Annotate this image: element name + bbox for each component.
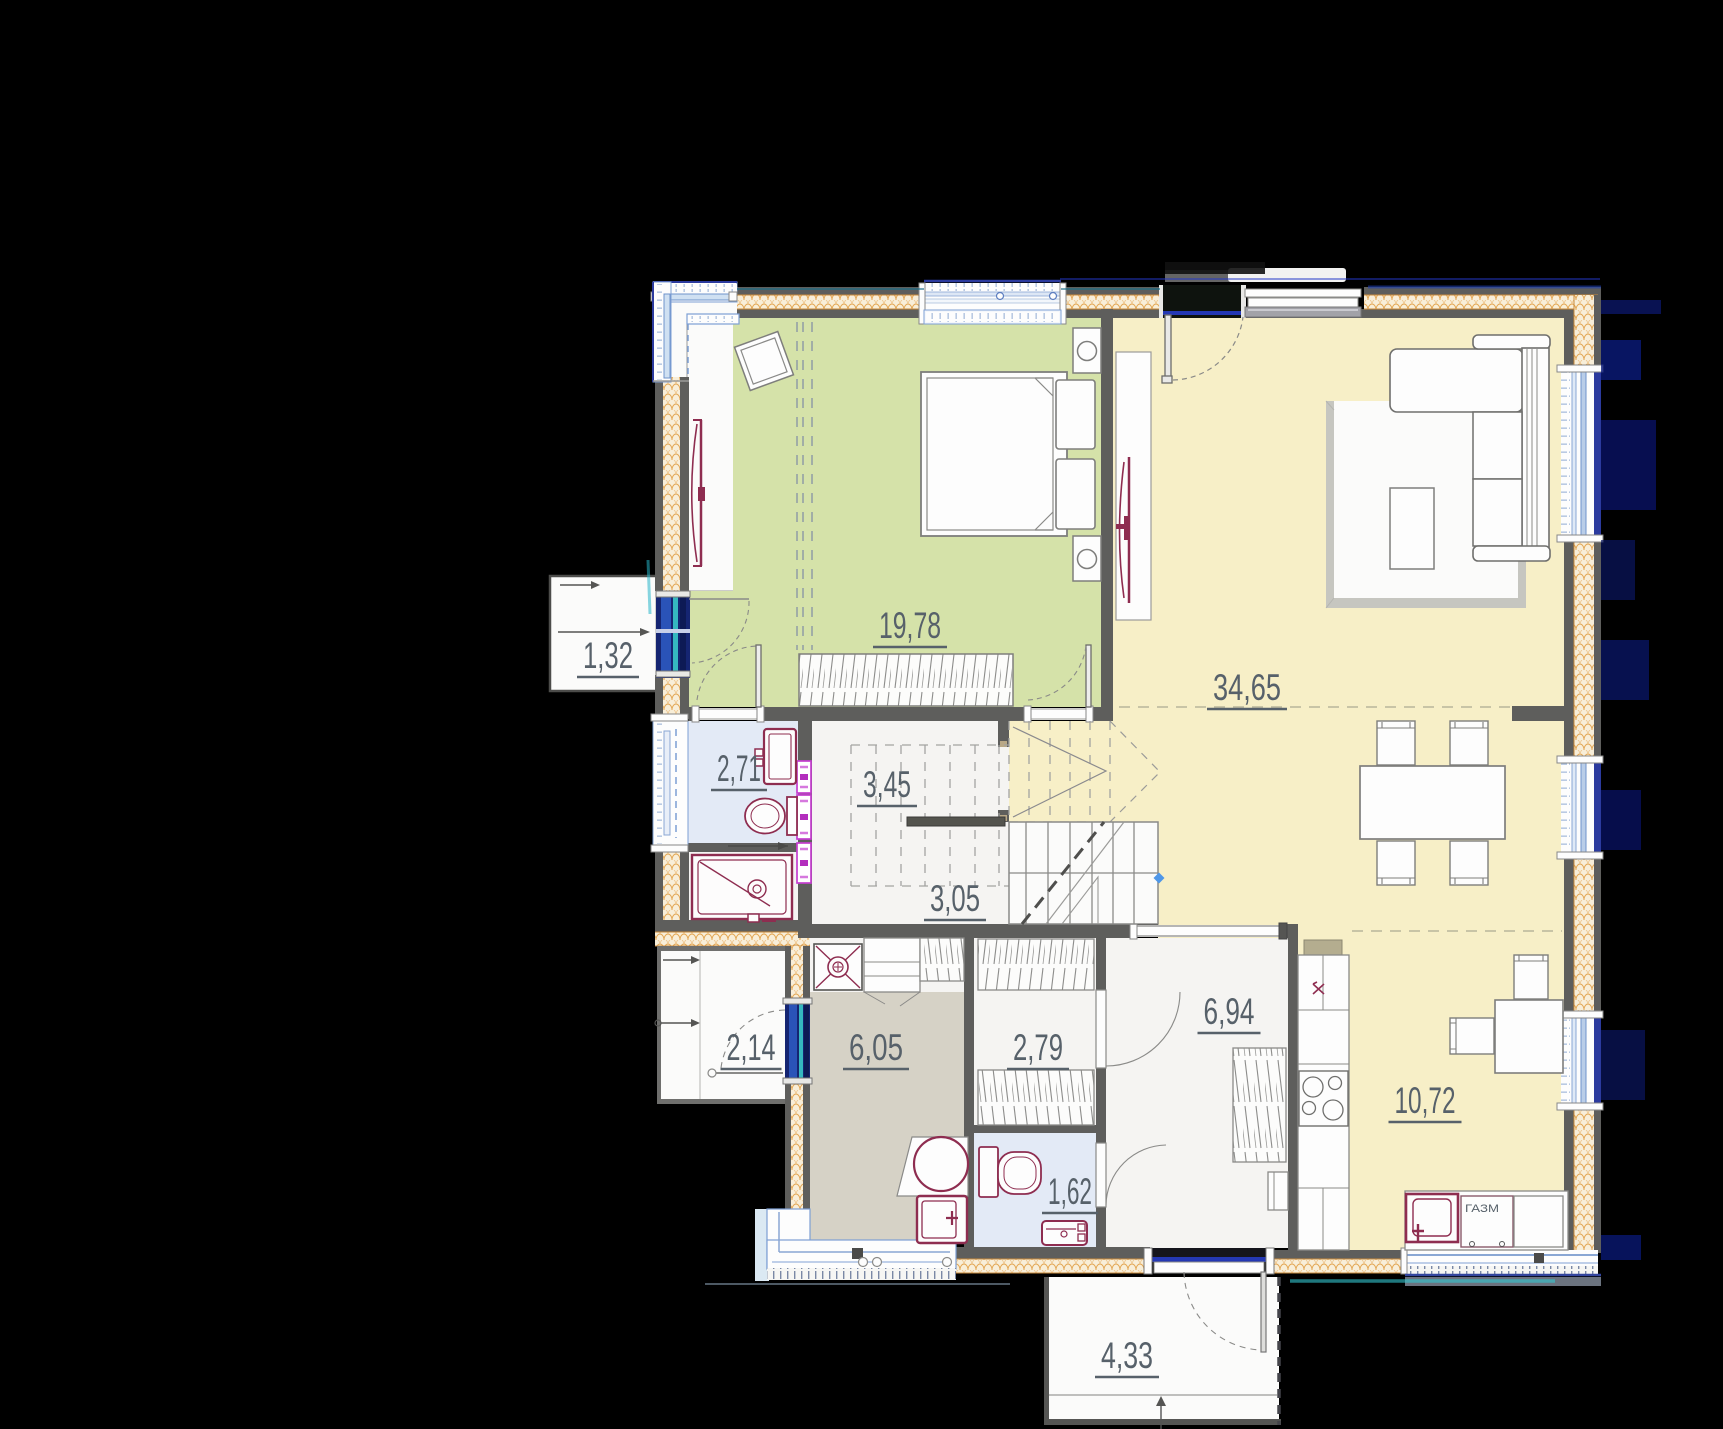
svg-text:3,45: 3,45 — [863, 764, 911, 805]
svg-text:19,78: 19,78 — [879, 605, 941, 646]
svg-text:1,32: 1,32 — [583, 635, 633, 676]
svg-text:34,65: 34,65 — [1213, 667, 1281, 708]
svg-text:2,71: 2,71 — [717, 748, 761, 789]
svg-text:6,94: 6,94 — [1204, 991, 1255, 1032]
svg-text:ГАЗМ: ГАЗМ — [1465, 1203, 1499, 1215]
svg-text:4,33: 4,33 — [1101, 1335, 1153, 1376]
svg-text:2,79: 2,79 — [1013, 1027, 1063, 1068]
svg-text:6,05: 6,05 — [849, 1027, 903, 1068]
svg-text:2,14: 2,14 — [727, 1027, 776, 1068]
svg-text:10,72: 10,72 — [1395, 1080, 1456, 1121]
svg-text:1,62: 1,62 — [1048, 1171, 1092, 1212]
svg-text:3,05: 3,05 — [930, 878, 980, 919]
